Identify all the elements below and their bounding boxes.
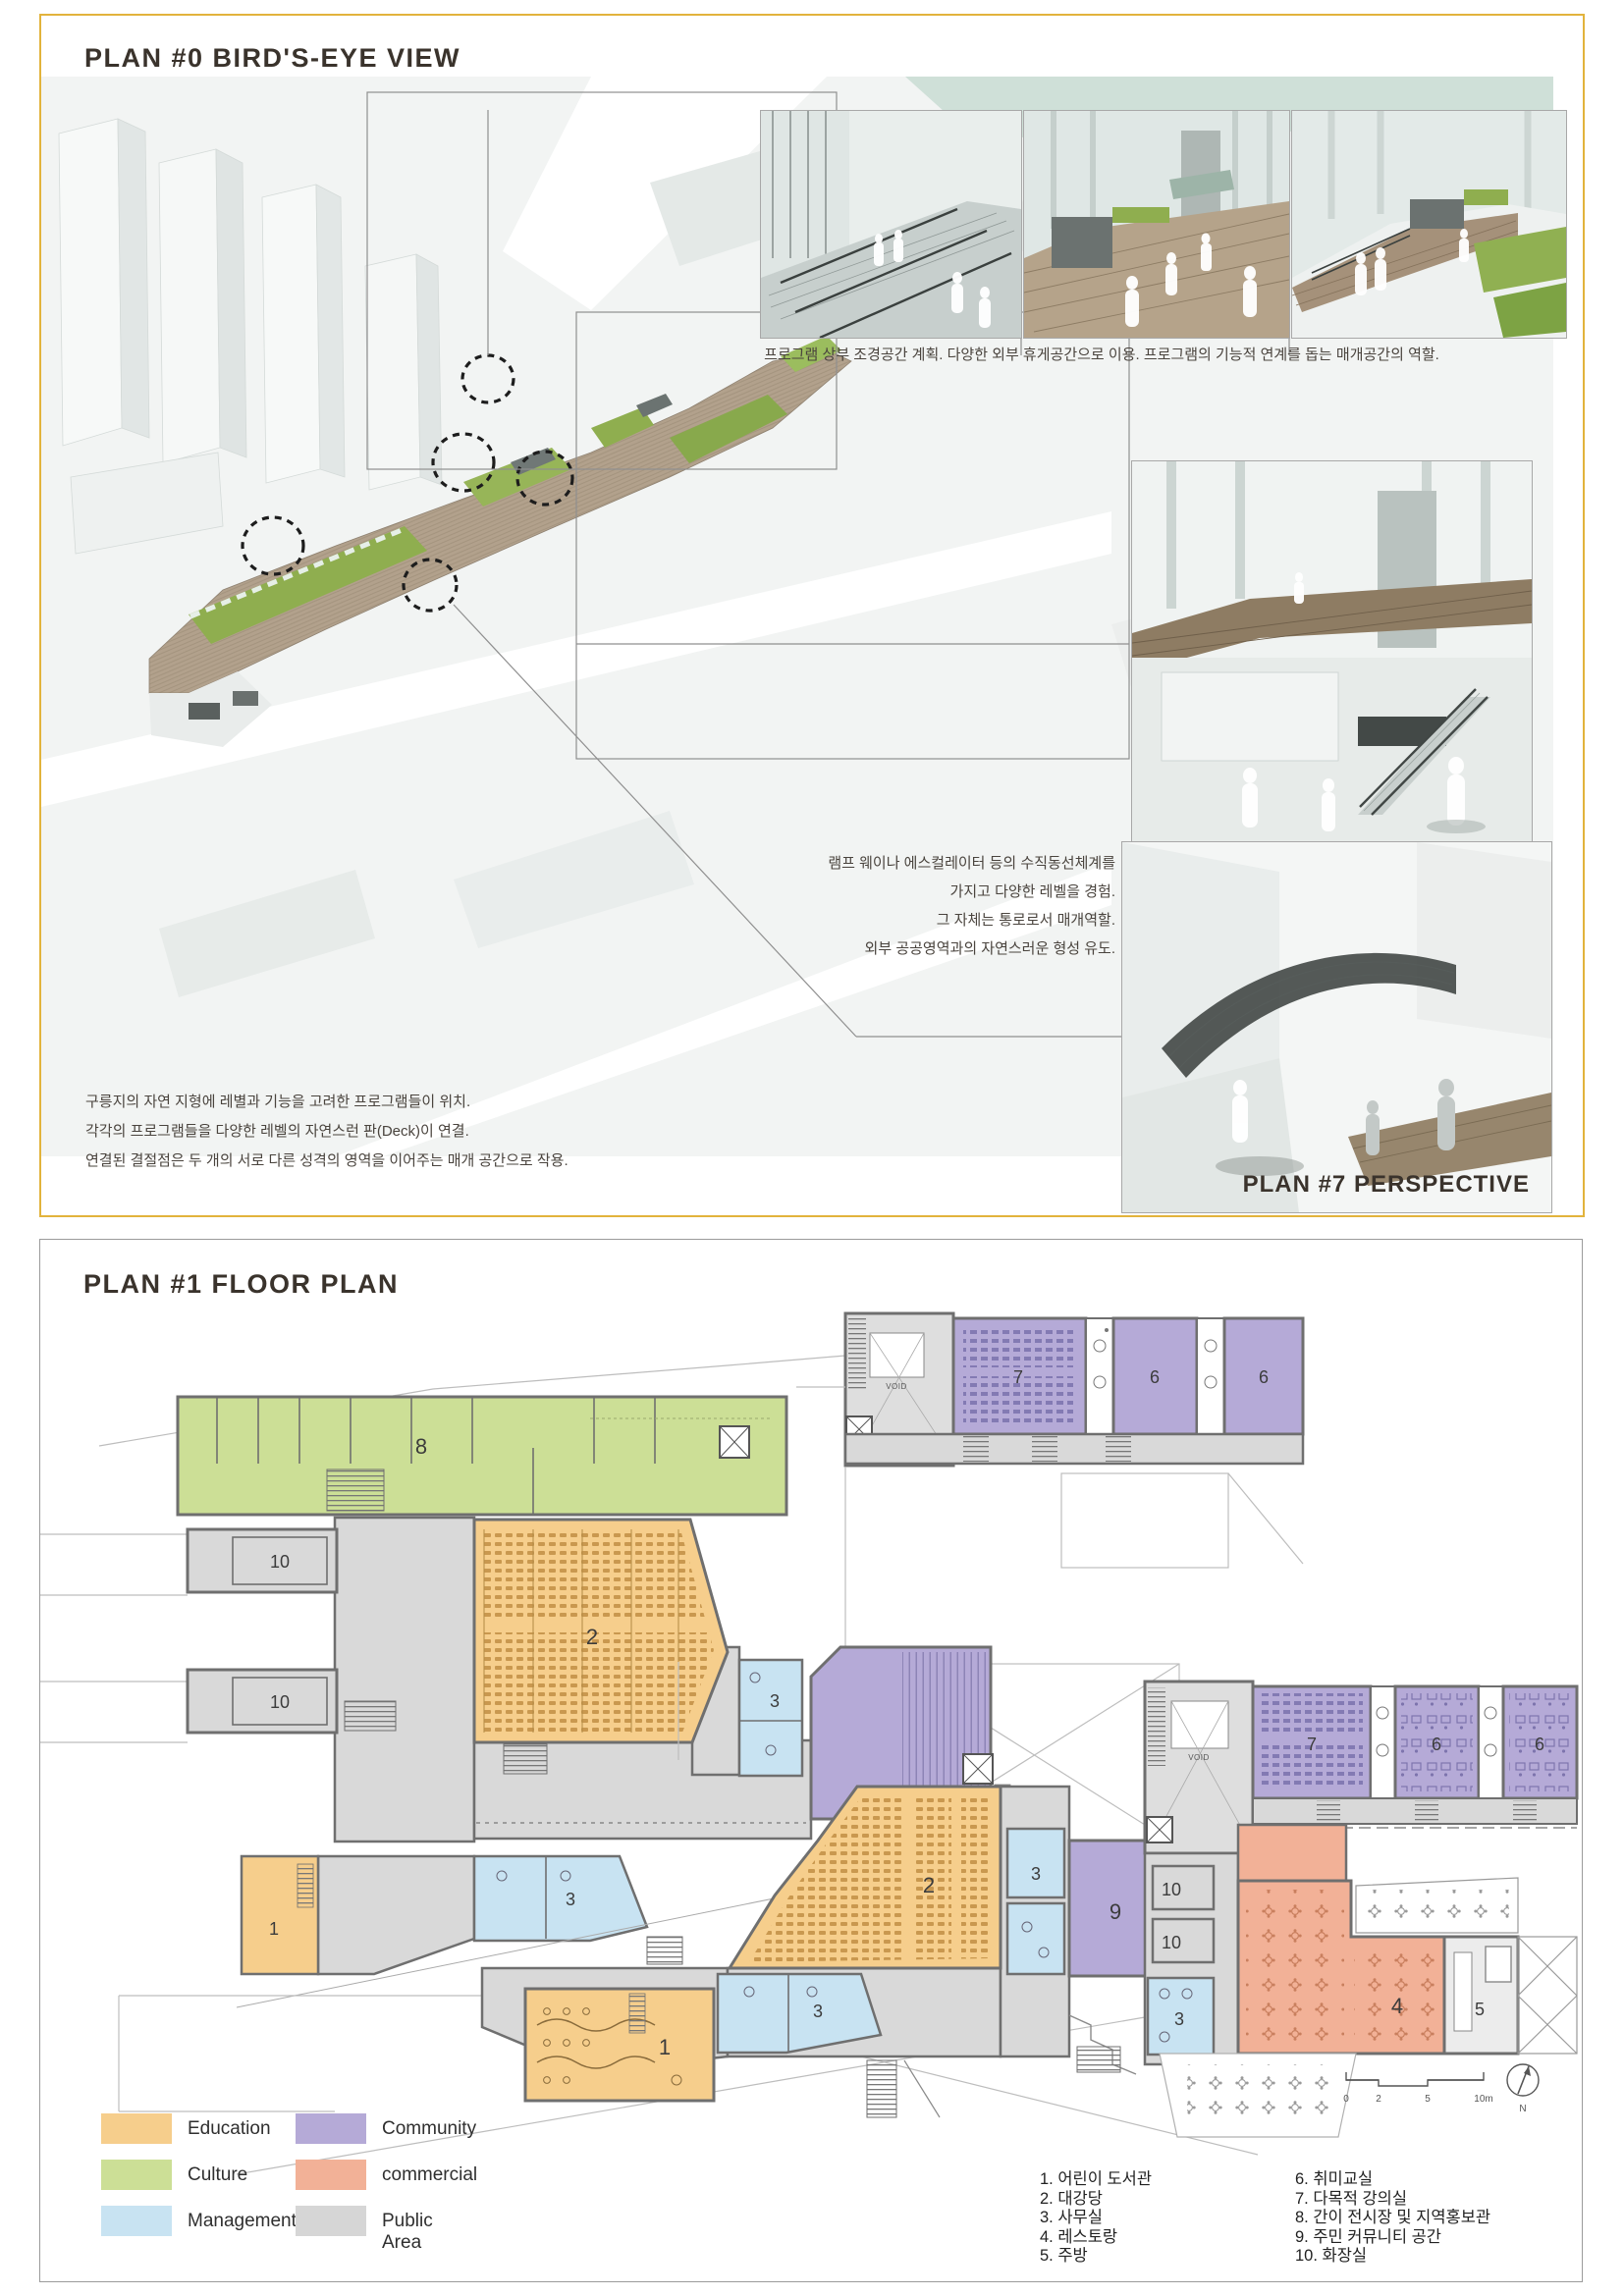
stair-icon: [1317, 1800, 1340, 1822]
annotation-line: 외부 공공영역과의 자연스러운 형성 유도.: [630, 934, 1115, 963]
annotation-line: 구릉지의 자연 지형에 레별과 기능을 고려한 프로그램들이 위치.: [85, 1088, 773, 1117]
elevator-icon: [963, 1754, 993, 1784]
stair-icon: [1415, 1800, 1438, 1822]
room-wc-10a: 10: [1153, 1866, 1214, 1909]
annotation-line: 각각의 프로그램들을 다양한 레벨의 자연스런 판(Deck)이 연결.: [85, 1117, 773, 1147]
room-office-3b: 3: [474, 1856, 647, 1941]
room-library-1: 1: [242, 1856, 318, 1974]
room-culture-8: 8: [178, 1397, 786, 1515]
room-hobby-6a: 6: [1113, 1318, 1197, 1434]
panel-top-title: PLAN #0 BIRD'S-EYE VIEW: [84, 43, 460, 74]
room-index-entry: 6. 취미교실: [1295, 2170, 1490, 2190]
annotation-site-concept: 구릉지의 자연 지형에 레별과 기능을 고려한 프로그램들이 위치. 각각의 프…: [85, 1088, 773, 1176]
room-index-entry: 8. 간이 전시장 및 지역홍보관: [1295, 2209, 1490, 2228]
svg-text:2: 2: [586, 1625, 598, 1649]
room-library-1: 1: [525, 1989, 714, 2101]
void-stair-block: VOID: [1145, 1682, 1253, 1853]
svg-text:3: 3: [1174, 2009, 1184, 2029]
elevator-icon: [720, 1426, 749, 1458]
stair-icon: [963, 1436, 989, 1462]
legend-swatch: [296, 2160, 366, 2190]
svg-text:3: 3: [1031, 1864, 1041, 1884]
room-office-3a: 3: [739, 1660, 802, 1776]
inset-perspective: PLAN #7 PERSPECTIVE: [1121, 841, 1552, 1213]
svg-text:7: 7: [1307, 1735, 1317, 1754]
svg-text:N: N: [1519, 2104, 1526, 2114]
svg-text:1: 1: [659, 2035, 671, 2059]
presentation-board: PLAN #0 BIRD'S-EYE VIEW: [0, 0, 1624, 2296]
svg-text:10m: 10m: [1474, 2094, 1492, 2105]
truss-bay: [1518, 1937, 1577, 2054]
svg-text:6: 6: [1150, 1367, 1160, 1387]
floorplan-panel: PLAN #1 FLOOR PLAN: [39, 1239, 1583, 2282]
annotation-line: 그 자체는 통로로서 매개역할.: [630, 906, 1115, 934]
inset-deck-walk: [1023, 110, 1290, 339]
room-index-entry: 3. 사무실: [1040, 2209, 1152, 2228]
scale-bar: [1346, 2072, 1484, 2086]
figures: [1232, 1080, 1248, 1143]
svg-text:7: 7: [1013, 1367, 1023, 1387]
stair-icon: [345, 1701, 396, 1731]
room-office-3c: 3: [1148, 1978, 1214, 2055]
svg-text:6: 6: [1535, 1735, 1544, 1754]
svg-text:10: 10: [270, 1692, 290, 1712]
svg-text:8: 8: [415, 1434, 427, 1459]
north-arrow-icon: [1507, 2064, 1539, 2096]
wc-strip: [1371, 1686, 1395, 1798]
room-wc-10a: 10: [188, 1529, 337, 1592]
legend-swatch: [296, 2113, 366, 2144]
svg-text:VOID: VOID: [1188, 1753, 1210, 1762]
corridor: [845, 1434, 1303, 1464]
room-index-entry: 1. 어린이 도서관: [1040, 2170, 1152, 2190]
annotation-line: 램프 웨이나 에스컬레이터 등의 수직동선체계를: [630, 849, 1115, 878]
room-index-entry: 10. 화장실: [1295, 2247, 1490, 2267]
insets-caption: 프로그램 상부 조경공간 계획. 다양한 외부 휴게공간으로 이용. 프로그램의…: [729, 344, 1475, 364]
room-index-col2: 6. 취미교실 7. 다목적 강의실 8. 간이 전시장 및 지역홍보관 9. …: [1295, 2170, 1490, 2267]
room-index-col1: 1. 어린이 도서관 2. 대강당 3. 사무실 4. 레스토랑 5. 주방: [1040, 2170, 1152, 2267]
floor-plans: 8 10 10: [40, 1240, 1582, 2281]
svg-text:5: 5: [1475, 2000, 1485, 2019]
svg-text:4: 4: [1391, 1994, 1403, 2018]
svg-text:6: 6: [1259, 1367, 1269, 1387]
stair-icon: [1032, 1436, 1057, 1462]
inset-deck-greens: [1291, 110, 1567, 339]
legend-label: Education: [188, 2118, 271, 2140]
legend-label: commercial: [382, 2164, 477, 2186]
room-kitchen-5: 5: [1444, 1937, 1518, 2054]
room-wc-10b: 10: [1153, 1919, 1214, 1962]
svg-text:10: 10: [270, 1552, 290, 1572]
outdoor-seating: [1356, 1878, 1518, 1933]
svg-text:1: 1: [269, 1919, 279, 1939]
svg-text:0: 0: [1343, 2094, 1349, 2105]
inset-roof-stairs: [760, 110, 1022, 339]
room-lecture-7: 7: [1253, 1686, 1371, 1798]
room-index-entry: 7. 다목적 강의실: [1295, 2190, 1490, 2210]
svg-text:10: 10: [1162, 1933, 1181, 1952]
wing-upper: VOID 7: [796, 1313, 1303, 1466]
inset-escalator: [1131, 460, 1533, 843]
room-hobby-6a: 6: [1395, 1686, 1479, 1798]
room-lecture-7: 7: [953, 1318, 1086, 1434]
stair-icon: [1513, 1800, 1537, 1822]
room-index-entry: 2. 대강당: [1040, 2190, 1152, 2210]
room-wc-10b: 10: [188, 1670, 337, 1733]
elevator-icon: [1147, 1817, 1172, 1842]
perspective-label: PLAN #7 PERSPECTIVE: [1243, 1171, 1530, 1199]
room-auditorium-2: 2: [474, 1520, 728, 1742]
room-hobby-6b: 6: [1224, 1318, 1303, 1434]
legend-label: Management: [188, 2211, 297, 2232]
birdseye-panel: PLAN #0 BIRD'S-EYE VIEW: [39, 14, 1585, 1217]
svg-text:10: 10: [1162, 1880, 1181, 1899]
legend-swatch: [101, 2113, 172, 2144]
wc-strip: [1197, 1318, 1224, 1434]
legend-label: Community: [382, 2118, 476, 2140]
svg-text:VOID: VOID: [886, 1382, 907, 1391]
legend-label: Culture: [188, 2164, 247, 2186]
legend-swatch: [296, 2206, 366, 2236]
room-index-entry: 9. 주민 커뮤니티 공간: [1295, 2228, 1490, 2248]
room-hobby-6b: 6: [1503, 1686, 1577, 1798]
wc-strip: [1086, 1318, 1113, 1434]
terrace-seating: [1160, 2054, 1356, 2137]
room-index-entry: 4. 레스토랑: [1040, 2228, 1152, 2248]
svg-text:9: 9: [1110, 1899, 1121, 1924]
legend-label: Public Area: [382, 2211, 433, 2254]
stair-icon: [647, 1937, 682, 1964]
svg-text:2: 2: [923, 1873, 935, 1897]
svg-text:3: 3: [566, 1890, 575, 1909]
room-restaurant-4: 4: [1238, 1825, 1444, 2054]
svg-text:2: 2: [1376, 2094, 1381, 2105]
annotation-vertical-circulation: 램프 웨이나 에스컬레이터 등의 수직동선체계를 가지고 다양한 레벨을 경험.…: [630, 849, 1115, 963]
svg-text:3: 3: [813, 2002, 823, 2021]
svg-text:3: 3: [770, 1691, 780, 1711]
svg-text:6: 6: [1432, 1735, 1441, 1754]
legend-swatch: [101, 2206, 172, 2236]
legend-swatch: [101, 2160, 172, 2190]
annotation-line: 연결된 결절점은 두 개의 서로 다른 성격의 영역을 이어주는 매개 공간으로…: [85, 1147, 773, 1176]
stair-icon: [504, 1744, 547, 1774]
annotation-line: 가지고 다양한 레벨을 경험.: [630, 878, 1115, 906]
stair-icon: [1106, 1436, 1131, 1462]
room-index-entry: 5. 주방: [1040, 2247, 1152, 2267]
wc-strip: [1479, 1686, 1503, 1798]
svg-text:5: 5: [1425, 2094, 1431, 2105]
